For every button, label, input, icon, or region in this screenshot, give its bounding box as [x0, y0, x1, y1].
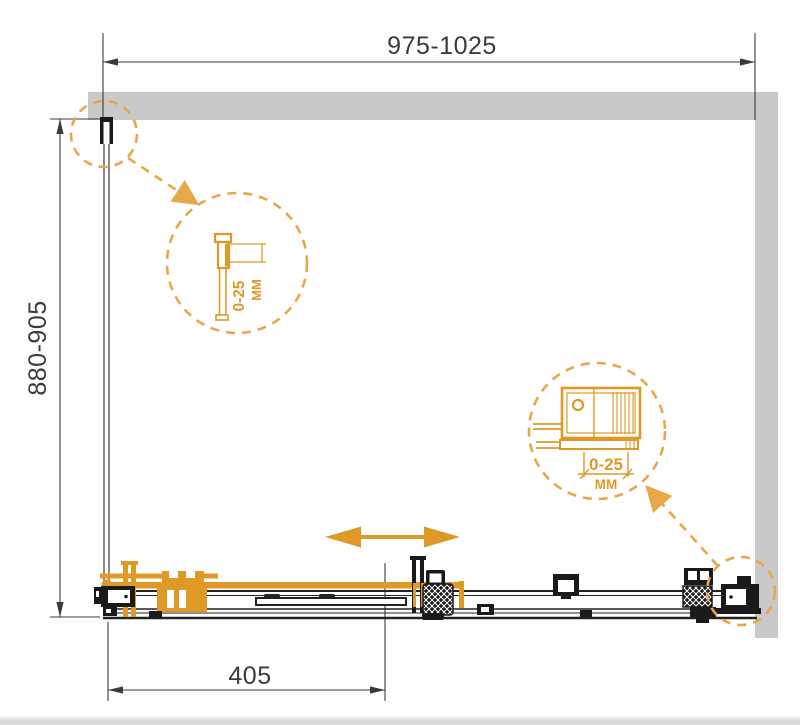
bracket-window [700, 571, 709, 580]
roller-adjustment-unit: ММ [595, 477, 618, 492]
carriage-upper-block [162, 571, 204, 586]
arrowhead-down [56, 602, 63, 617]
arrowhead-left [103, 58, 118, 65]
profile-foot-notch [106, 609, 111, 613]
depth-dimension-label: 880-905 [24, 300, 52, 395]
side-bracket-window [481, 607, 489, 612]
carriage-slot [179, 590, 186, 608]
track-foot [580, 610, 592, 617]
arrowhead-left [108, 686, 123, 693]
panel-clip [319, 594, 335, 599]
page-bottom-artifact [0, 718, 800, 725]
roller-adjustment-value: 0-25 [589, 455, 623, 474]
profile-screw [729, 595, 733, 599]
wall-profile-adjustment-unit: ММ [249, 279, 264, 301]
bracket-tab [561, 594, 571, 599]
callout-leader-top [128, 158, 196, 203]
callout-circles [71, 101, 775, 625]
profile-base [716, 608, 761, 614]
arrowhead-left [325, 527, 361, 548]
shower-enclosure-drawing: 975-1025 880-905 405 [0, 0, 800, 725]
top-wall [88, 92, 778, 120]
profile-window [726, 589, 746, 605]
arrowhead-right [370, 686, 385, 693]
carriage-body [423, 584, 453, 615]
roller-post-cap [121, 561, 138, 565]
right-wall-profile-bottom [716, 576, 761, 614]
glass-end-cap [216, 315, 228, 320]
top-wall-profile [100, 117, 113, 144]
glass-panel-edge [256, 598, 406, 605]
center-roller-carriage [410, 556, 494, 620]
profile-screw [124, 595, 128, 599]
track-foot [149, 611, 162, 618]
profile-cap [215, 234, 231, 242]
depth-dimension [50, 119, 100, 617]
carriage-tab [696, 617, 709, 623]
roller-housing [562, 388, 640, 438]
technical-drawing-page: 975-1025 880-905 405 [0, 0, 800, 725]
right-wall [755, 120, 778, 638]
callout-leader-bottom [648, 488, 718, 566]
post-orange-insert [413, 583, 416, 607]
roller-adjustment-detail [533, 388, 640, 479]
arrowhead-right [424, 527, 460, 548]
slide-direction-arrow [325, 527, 460, 548]
walls [88, 92, 778, 638]
top-bracket-window [430, 574, 442, 583]
panel-clip [264, 594, 280, 599]
door-opening-dimension-label: 405 [228, 662, 271, 690]
width-dimension-label: 975-1025 [387, 32, 497, 60]
bracket-window [688, 571, 697, 580]
carriage-notch [169, 571, 178, 578]
carriage-foot [422, 613, 444, 620]
right-roller-carriage [683, 568, 716, 623]
arrowhead-up [56, 119, 63, 134]
post-cap [410, 556, 426, 560]
door-stile-orange [459, 581, 464, 608]
profile-notch [96, 591, 99, 597]
carriage-notch [186, 571, 195, 578]
left-glass-panel [100, 117, 113, 592]
arrowhead-right [740, 58, 755, 65]
carriage-slot [167, 590, 174, 608]
bracket-window [558, 580, 574, 592]
wall-profile-adjustment-value: 0-25 [231, 280, 248, 311]
profile-insert [225, 244, 229, 267]
